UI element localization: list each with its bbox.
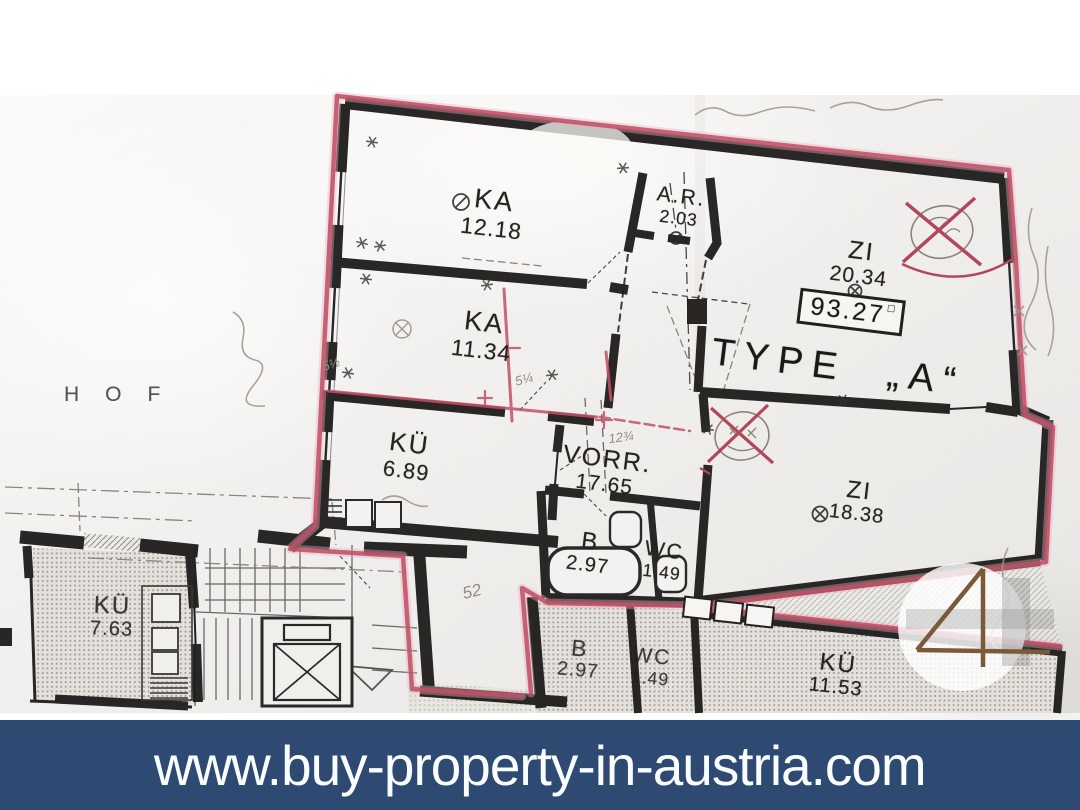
room-label-vorr: VORR. 17.65	[559, 441, 654, 501]
room-label-b-1: B 2.97	[565, 527, 614, 580]
room-area: 1.49	[630, 668, 670, 690]
room-label-wc-2: WC 1.49	[630, 644, 673, 689]
room-name: KÜ	[93, 592, 131, 619]
website-url: www.buy-property-in-austria.com	[154, 733, 926, 798]
room-label-ku-11: KÜ 11.53	[808, 648, 867, 701]
room-label-ku-7: KÜ 7.63	[90, 592, 135, 641]
room-area: 6.89	[382, 456, 431, 485]
room-area: 7.63	[90, 619, 134, 642]
screenshot-root: HOF KA 12.18 A.R. 2.03 ZI 20.34 93.27□ T…	[0, 0, 1080, 810]
total-area-value: 93.27	[809, 292, 887, 329]
elevator-icon	[262, 618, 352, 706]
room-name: KA	[463, 306, 506, 339]
courtyard-label: HOF	[64, 383, 186, 407]
room-label-zi-18: ZI 18.38	[828, 475, 889, 529]
room-name: ZI	[847, 237, 876, 266]
room-label-ka-11: KA 11.34	[450, 305, 516, 365]
room-label-ka-12: KA 12.18	[459, 183, 526, 243]
room-label-b-2: B 2.97	[556, 634, 601, 683]
room-area: 2.97	[556, 660, 599, 684]
room-label-wc-1: WC 1.49	[641, 538, 685, 584]
square-meter-mark: □	[887, 303, 895, 316]
website-banner: www.buy-property-in-austria.com	[0, 720, 1080, 810]
room-name: KÜ	[818, 649, 858, 678]
room-label-ar: A.R. 2.03	[653, 183, 707, 231]
room-name: KA	[473, 184, 516, 217]
room-name: B	[580, 528, 601, 555]
room-label-zi-20: ZI 20.34	[828, 235, 891, 291]
room-label-ku-6: KÜ 6.89	[382, 428, 434, 485]
room-name: ZI	[845, 477, 873, 505]
room-name: B	[570, 635, 589, 661]
room-name: KÜ	[388, 428, 431, 460]
